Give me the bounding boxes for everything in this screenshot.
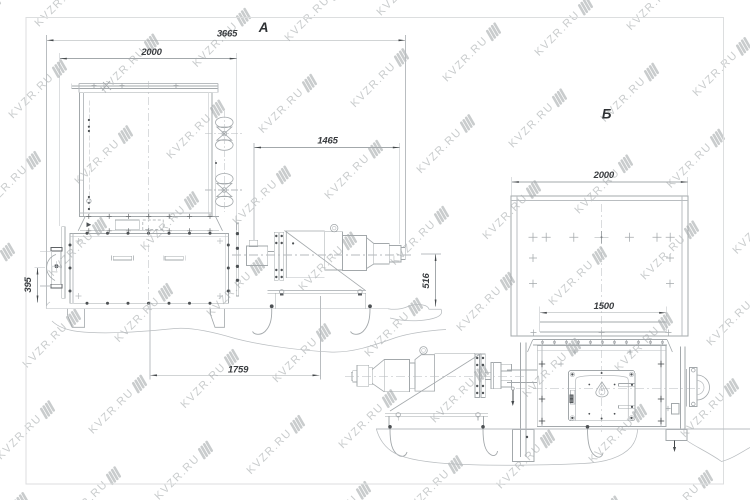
svg-text:KVZR.RU: KVZR.RU [0,412,45,462]
svg-text:KVZR.RU: KVZR.RU [164,111,214,161]
svg-text:KVZR.RU: KVZR.RU [678,390,728,440]
svg-text:Б: Б [602,107,612,122]
svg-text:KVZR.RU: KVZR.RU [612,324,662,374]
svg-text:KVZR.RU: KVZR.RU [546,258,596,308]
svg-text:KVZR.RU: KVZR.RU [428,375,478,425]
svg-text:KVZR.RU: KVZR.RU [480,192,530,242]
svg-text:KVZR.RU: KVZR.RU [112,295,162,345]
svg-text:KVZR.RU: KVZR.RU [414,126,464,176]
svg-text:KVZR.RU: KVZR.RU [190,20,240,70]
svg-text:KVZR.RU: KVZR.RU [454,284,504,334]
svg-text:KVZR.RU: KVZR.RU [72,137,122,187]
svg-text:KVZR.RU: KVZR.RU [348,60,398,110]
svg-text:KVZR.RU: KVZR.RU [270,335,320,385]
svg-text:KVZR.RU: KVZR.RU [296,243,346,293]
svg-text:KVZR.RU: KVZR.RU [624,0,674,33]
svg-text:KVZR.RU: KVZR.RU [0,254,5,304]
svg-text:KVZR.RU: KVZR.RU [652,482,702,500]
svg-text:KVZR.RU: KVZR.RU [506,100,556,150]
svg-text:KVZR.RU: KVZR.RU [704,298,750,348]
svg-text:KVZR.RU: KVZR.RU [138,203,188,253]
svg-text:KVZR.RU: KVZR.RU [178,361,228,411]
svg-text:KVZR.RU: KVZR.RU [638,232,688,282]
svg-text:KVZR.RU: KVZR.RU [730,207,750,257]
svg-text:516: 516 [421,272,432,288]
svg-text:KVZR.RU: KVZR.RU [152,452,202,500]
svg-text:2000: 2000 [593,170,615,181]
svg-text:KVZR.RU: KVZR.RU [322,152,372,202]
svg-text:395: 395 [23,276,34,292]
svg-text:KVZR.RU: KVZR.RU [282,0,332,44]
svg-text:1465: 1465 [317,136,338,147]
svg-text:KVZR.RU: KVZR.RU [440,34,490,84]
svg-text:1500: 1500 [594,301,615,312]
svg-text:KVZR.RU: KVZR.RU [204,269,254,319]
svg-text:1759: 1759 [228,364,249,375]
svg-text:KVZR.RU: KVZR.RU [256,86,306,136]
svg-text:3665: 3665 [217,29,238,40]
svg-text:KVZR.RU: KVZR.RU [664,141,714,191]
svg-text:KVZR.RU: KVZR.RU [336,401,386,451]
svg-text:KVZR.RU: KVZR.RU [520,350,570,400]
svg-text:KVZR.RU: KVZR.RU [586,416,636,466]
svg-text:KVZR.RU: KVZR.RU [6,71,56,121]
svg-text:2000: 2000 [140,47,162,58]
svg-text:KVZR.RU: KVZR.RU [32,0,82,29]
svg-text:KVZR.RU: KVZR.RU [310,493,360,500]
svg-text:KVZR.RU: KVZR.RU [690,49,740,99]
svg-text:KVZR.RU: KVZR.RU [230,177,280,227]
svg-text:KVZR.RU: KVZR.RU [374,0,424,18]
svg-text:KVZR.RU: KVZR.RU [46,229,96,279]
svg-text:KVZR.RU: KVZR.RU [362,309,412,359]
svg-text:KVZR.RU: KVZR.RU [86,386,136,436]
svg-text:KVZR.RU: KVZR.RU [532,9,582,59]
svg-text:KVZR.RU: KVZR.RU [60,478,110,500]
svg-text:KVZR.RU: KVZR.RU [388,218,438,268]
svg-text:KVZR.RU: KVZR.RU [244,427,294,477]
svg-text:А: А [258,20,269,35]
